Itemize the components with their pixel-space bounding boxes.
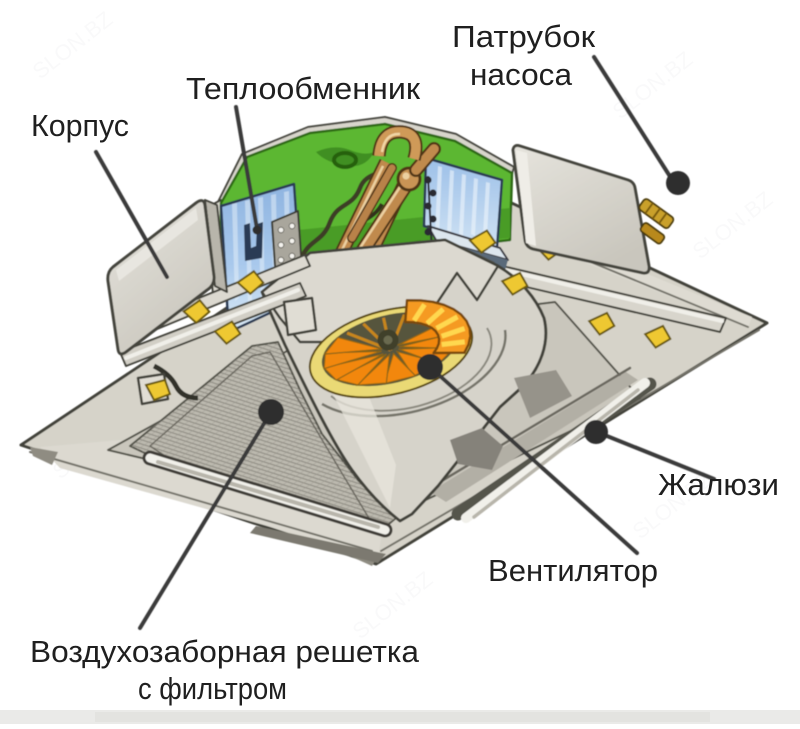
svg-text:насоса: насоса — [470, 58, 572, 92]
svg-text:Теплообменник: Теплообменник — [186, 72, 421, 106]
svg-text:Корпус: Корпус — [31, 109, 129, 143]
svg-text:Патрубок: Патрубок — [452, 20, 596, 54]
svg-text:Воздухозаборная решетка: Воздухозаборная решетка — [30, 635, 419, 669]
svg-text:Вентилятор: Вентилятор — [488, 554, 658, 588]
svg-text:с фильтром: с фильтром — [138, 672, 287, 706]
svg-text:Жалюзи: Жалюзи — [658, 468, 779, 502]
